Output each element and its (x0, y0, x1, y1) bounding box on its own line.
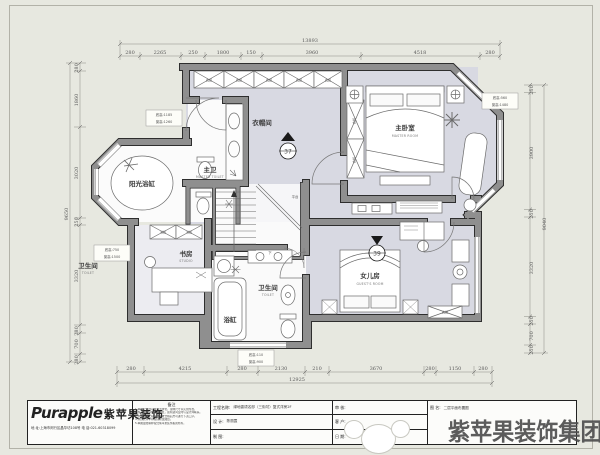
remark-line: 5.本图最终解释权归紫苹果装饰集团所有。 (135, 422, 208, 425)
svg-text:MASTER ROOM: MASTER ROOM (392, 134, 418, 138)
svg-text:GUEST'S ROOM: GUEST'S ROOM (356, 282, 383, 286)
svg-text:衣柜: 衣柜 (296, 78, 303, 83)
svg-text:280: 280 (126, 366, 136, 372)
svg-text:STUDIO: STUDIO (179, 259, 193, 263)
label-tub: 浴缸 (224, 315, 238, 324)
label-sun-tub: 阳光浴缸 (129, 179, 156, 188)
label-cloakroom: 衣帽间 (252, 118, 272, 127)
svg-text:250: 250 (529, 345, 535, 355)
project-label: 工程名称: (213, 405, 230, 411)
floorplan-sheet: 衣帽间 主卫 MASTER TOILET 主卧室 MASTER ROOM 阳光浴… (0, 0, 600, 455)
drawing-label: 图 名: (430, 405, 441, 411)
logo-en: Purapple (31, 404, 102, 422)
floorplan-drawing: 衣帽间 主卫 MASTER TOILET 主卧室 MASTER ROOM 阳光浴… (0, 0, 600, 455)
svg-text:书柜: 书柜 (160, 230, 167, 235)
svg-text:窗高:900: 窗高:900 (249, 359, 263, 364)
company-address: 地 址:上海市闵行区晶华坊108号 电 话:021-60318099 (31, 425, 130, 430)
note-3: 底高:560 (493, 95, 507, 100)
design-label: 设 计: (213, 419, 224, 425)
design-value: 陈丽霞 (227, 419, 238, 424)
svg-text:250: 250 (529, 85, 535, 95)
svg-text:书柜: 书柜 (186, 230, 193, 235)
svg-text:衣柜: 衣柜 (266, 78, 273, 83)
svg-text:TOILET: TOILET (261, 293, 274, 297)
svg-text:250: 250 (74, 217, 80, 227)
svg-text:280: 280 (425, 366, 435, 372)
svg-text:3320: 3320 (529, 262, 535, 275)
remarks-cell: 备注 1.本图尺寸均以毫米为单位，现场尺寸以实测为准。 2.施工前请仔细核对图纸… (133, 401, 211, 444)
label-master-room: 主卧室 (395, 123, 415, 132)
svg-text:窗高:1260: 窗高:1260 (156, 119, 173, 124)
bookcase-cells (150, 225, 202, 239)
watermark-text: 紫苹果装饰集团 (448, 412, 586, 447)
daughter-marker-number: 39 (373, 251, 381, 258)
plant-icon (444, 112, 460, 128)
svg-text:1860: 1860 (74, 94, 80, 107)
audit-label: 审 核: (335, 405, 346, 411)
svg-text:250: 250 (529, 316, 535, 326)
label-toilet-small: 卫生间 (78, 261, 98, 270)
svg-text:3960: 3960 (306, 50, 319, 56)
svg-text:9040: 9040 (542, 218, 548, 231)
svg-text:13893: 13893 (302, 38, 318, 44)
svg-text:衣柜: 衣柜 (352, 156, 357, 163)
svg-text:9650: 9650 (64, 208, 70, 221)
svg-text:280: 280 (478, 366, 488, 372)
drawing-value: 二层平面布置图 (444, 406, 469, 411)
company-logo: Purapple 紫苹果装饰 地 址:上海市闵行区晶华坊108号 电 话:021… (28, 401, 133, 444)
label-bathroom: 卫生间 (258, 283, 278, 292)
svg-text:窗高:1500: 窗高:1500 (104, 254, 121, 259)
client-label: 客 户: (335, 419, 346, 425)
svg-text:衣柜: 衣柜 (236, 78, 243, 83)
svg-text:4518: 4518 (414, 50, 427, 56)
svg-text:3320: 3320 (74, 270, 80, 283)
svg-text:3670: 3670 (370, 366, 383, 372)
dresser (352, 201, 442, 214)
svg-text:280: 280 (74, 326, 80, 336)
svg-text:280: 280 (74, 63, 80, 73)
svg-text:衣柜: 衣柜 (352, 117, 357, 124)
stair-marker-number: 37 (284, 149, 292, 156)
note-2: 底高:750 (105, 247, 119, 252)
svg-text:4215: 4215 (179, 366, 192, 372)
svg-text:700: 700 (74, 339, 80, 349)
date-label: 日 期: (335, 434, 346, 440)
label-studio: 书房 (180, 249, 194, 258)
svg-text:衣柜: 衣柜 (206, 78, 213, 83)
svg-text:150: 150 (246, 50, 256, 56)
svg-text:衣柜: 衣柜 (325, 78, 332, 83)
svg-text:280: 280 (74, 355, 80, 365)
washer (214, 256, 234, 276)
svg-text:250: 250 (529, 209, 535, 219)
svg-text:280: 280 (485, 50, 495, 56)
label-daughter: 女儿房 (360, 271, 380, 280)
svg-text:2265: 2265 (154, 50, 167, 56)
svg-text:250: 250 (188, 50, 198, 56)
svg-text:280: 280 (237, 366, 247, 372)
svg-text:3020: 3020 (74, 167, 80, 180)
svg-text:210: 210 (312, 366, 322, 372)
draft-label: 制 图: (213, 434, 224, 440)
svg-text:3900: 3900 (529, 147, 535, 160)
svg-text:MASTER TOILET: MASTER TOILET (196, 175, 224, 179)
fields-project: 工程名称:绿地香颂名邸（三街坊）复式洋房2F 设 计:陈丽霞 制 图: (211, 401, 333, 444)
svg-text:700: 700 (529, 331, 535, 341)
label-master-toilet: 主卫 (204, 165, 218, 174)
svg-text:1150: 1150 (449, 366, 462, 372)
note-1: 底高:1185 (156, 112, 173, 117)
svg-text:280: 280 (125, 50, 135, 56)
svg-text:12925: 12925 (289, 377, 305, 383)
project-value: 绿地香颂名邸（三街坊）复式洋房2F (233, 405, 291, 410)
note-4: 底高:110 (249, 352, 263, 357)
svg-text:1800: 1800 (217, 50, 230, 56)
svg-text:TOILET: TOILET (81, 271, 94, 275)
label-landing: 平台 (292, 194, 299, 199)
svg-text:衣柜: 衣柜 (442, 310, 449, 315)
svg-text:2130: 2130 (275, 366, 288, 372)
svg-text:窗高:1480: 窗高:1480 (492, 102, 509, 107)
watermark-blob (391, 420, 410, 438)
